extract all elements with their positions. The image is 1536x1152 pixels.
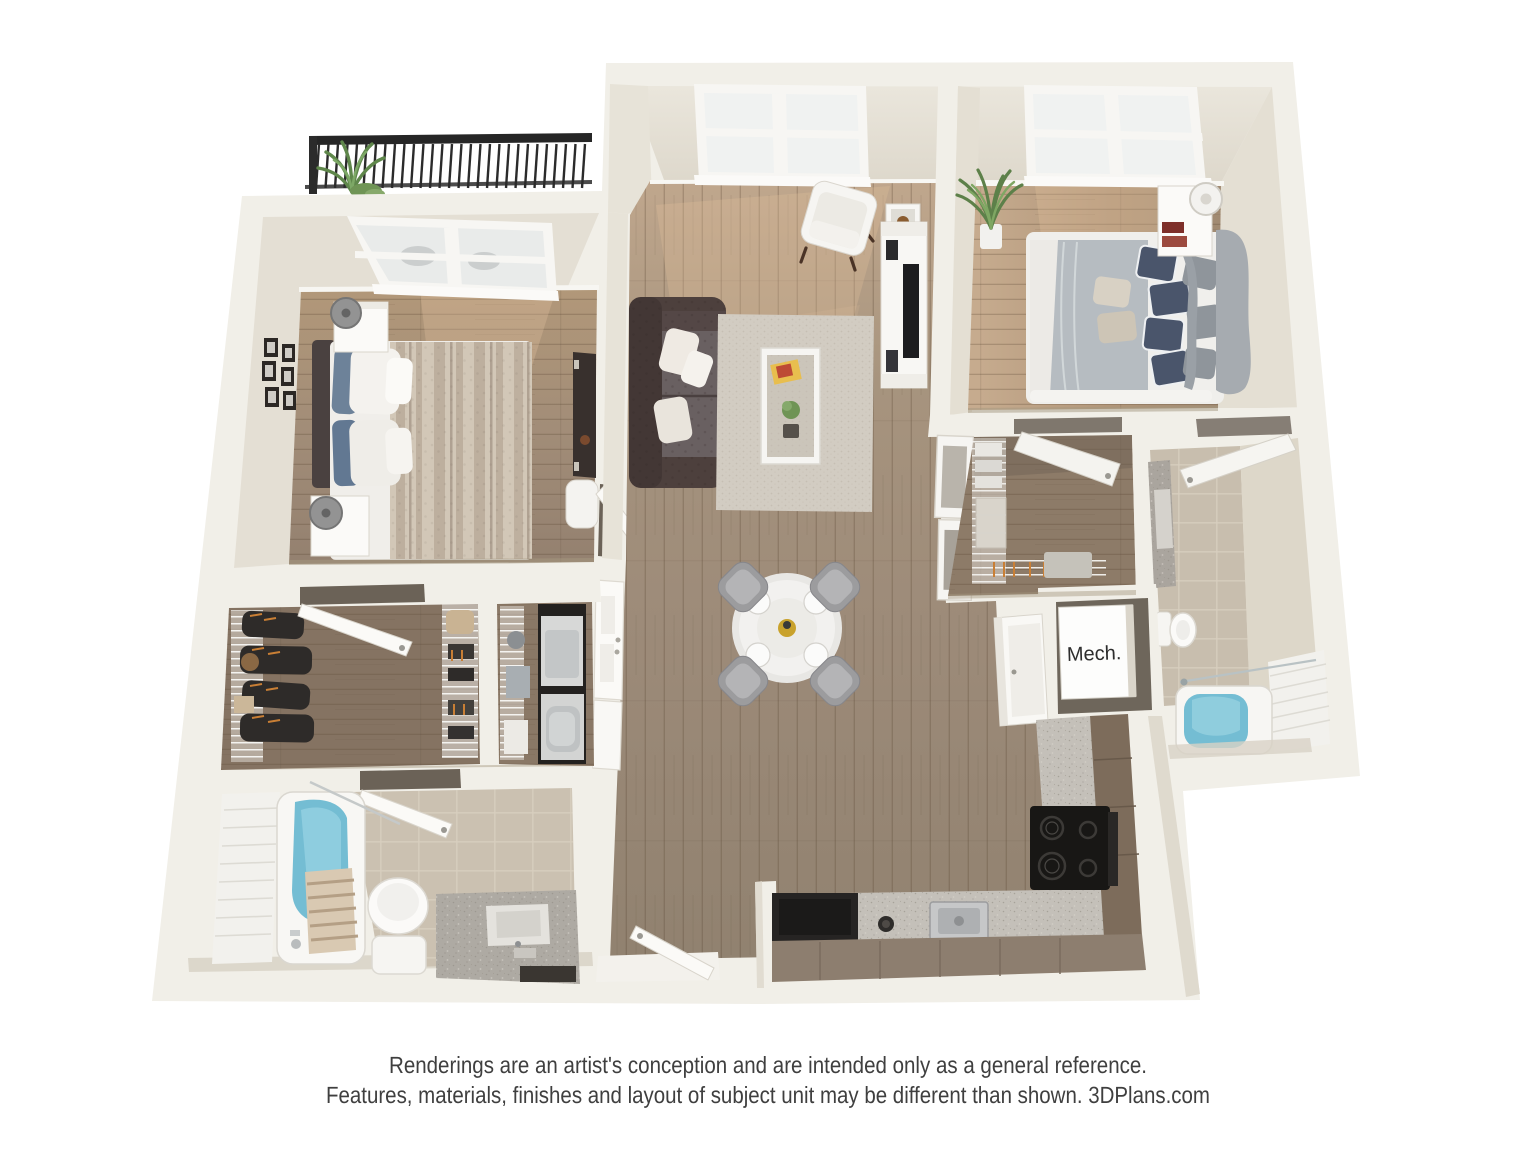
svg-text:Renderings are an artist's con: Renderings are an artist's conception an… <box>389 1052 1147 1078</box>
svg-text:Mech.: Mech. <box>1066 642 1121 666</box>
svg-text:Features, materials, finishes: Features, materials, finishes and layout… <box>326 1082 1210 1108</box>
